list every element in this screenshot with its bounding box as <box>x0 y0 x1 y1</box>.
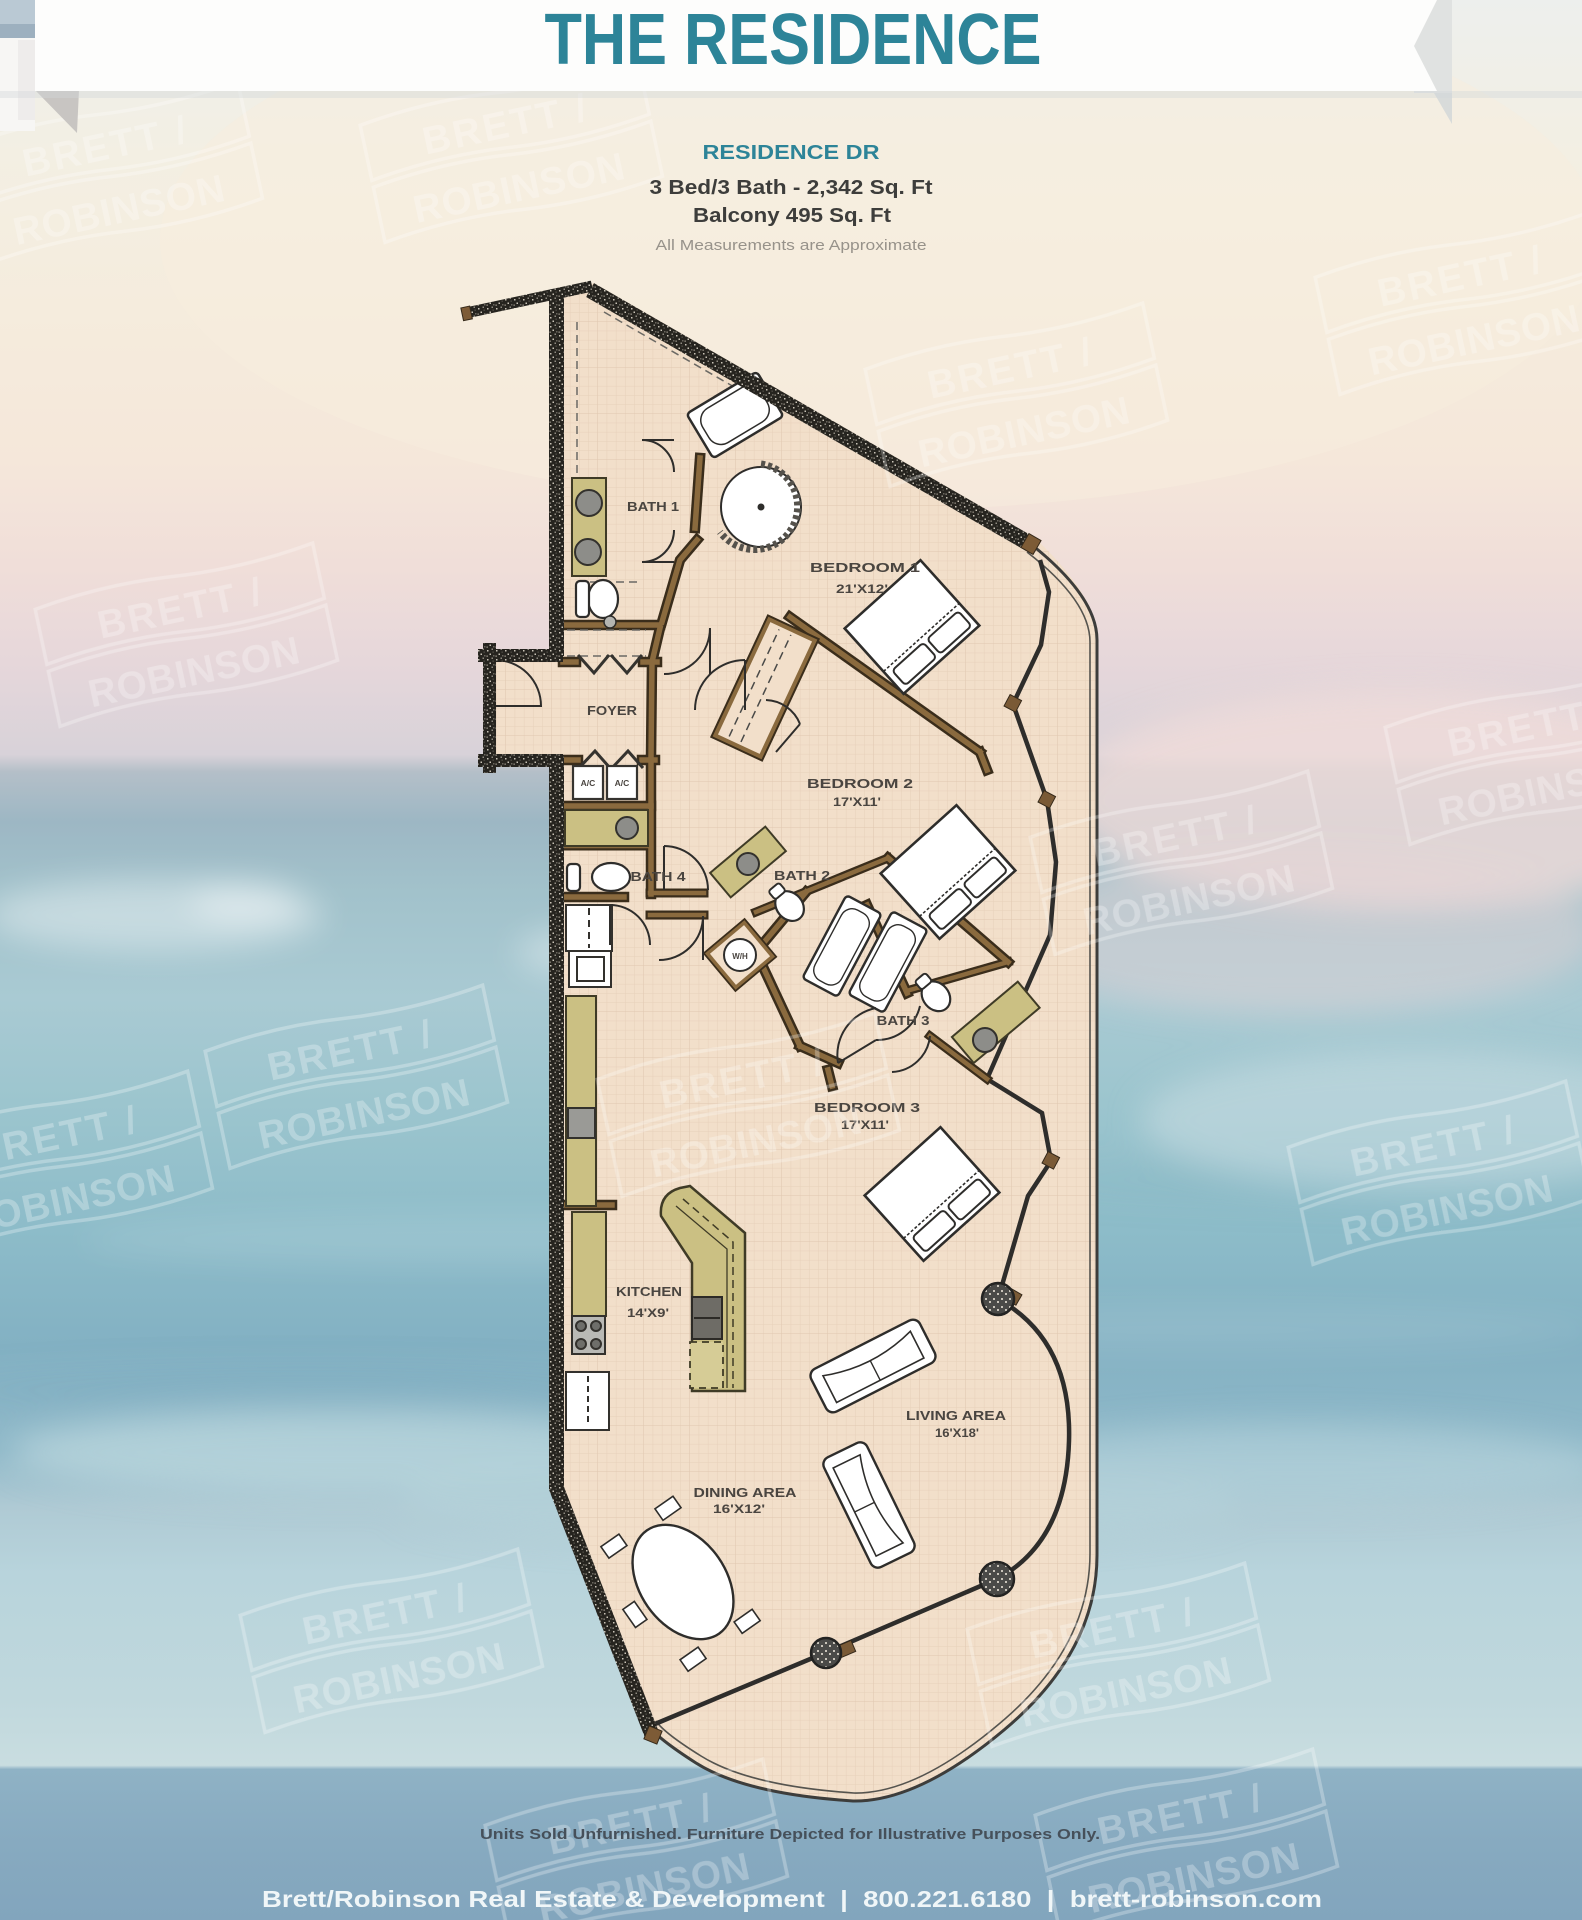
svg-text:14'X9': 14'X9' <box>627 1308 669 1320</box>
svg-text:21'X12': 21'X12' <box>836 584 888 596</box>
svg-text:BATH 3: BATH 3 <box>877 1014 930 1028</box>
svg-text:A/C: A/C <box>581 778 596 788</box>
svg-text:BATH 4: BATH 4 <box>631 870 686 884</box>
svg-text:KITCHEN: KITCHEN <box>616 1285 682 1299</box>
svg-text:BEDROOM 1: BEDROOM 1 <box>810 561 920 575</box>
svg-text:BEDROOM 2: BEDROOM 2 <box>807 777 913 791</box>
svg-text:Brett/Robinson Real Estate & D: Brett/Robinson Real Estate & Development… <box>262 1886 1322 1912</box>
svg-text:W/H: W/H <box>732 952 748 961</box>
svg-text:BATH 1: BATH 1 <box>627 500 679 514</box>
svg-text:LIVING AREA: LIVING AREA <box>906 1409 1006 1423</box>
svg-text:A/C: A/C <box>615 778 630 788</box>
svg-text:DINING AREA: DINING AREA <box>694 1486 797 1500</box>
svg-text:All Measurements are Approxima: All Measurements are Approximate <box>656 237 927 254</box>
svg-text:RESIDENCE DR: RESIDENCE DR <box>703 142 881 164</box>
svg-text:3 Bed/3 Bath - 2,342 Sq. Ft: 3 Bed/3 Bath - 2,342 Sq. Ft <box>650 177 933 199</box>
svg-text:FOYER: FOYER <box>587 704 637 718</box>
svg-text:THE RESIDENCE: THE RESIDENCE <box>545 0 1042 80</box>
svg-text:Balcony 495 Sq. Ft: Balcony 495 Sq. Ft <box>693 205 891 227</box>
svg-text:16'X12': 16'X12' <box>713 1504 765 1516</box>
svg-text:BATH 2: BATH 2 <box>774 869 830 883</box>
svg-text:17'X11': 17'X11' <box>833 797 881 809</box>
svg-text:Units Sold Unfurnished. Furnit: Units Sold Unfurnished. Furniture Depict… <box>480 1827 1100 1843</box>
svg-text:16'X18': 16'X18' <box>935 1428 979 1440</box>
